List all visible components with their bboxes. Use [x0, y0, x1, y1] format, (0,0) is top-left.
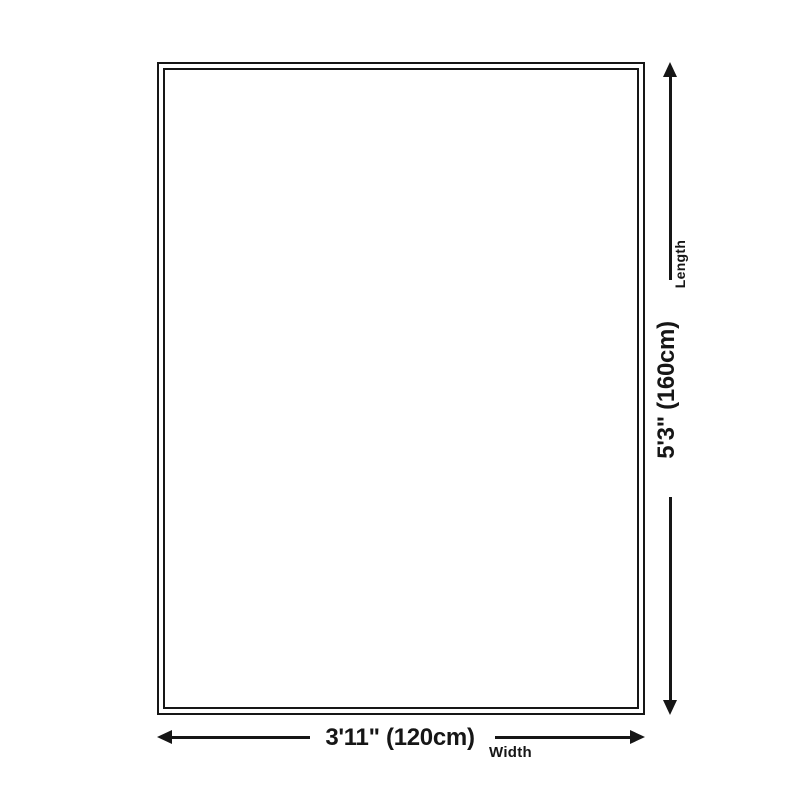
- arrow-right-icon: [630, 730, 645, 744]
- length-arrow-lower-line: [669, 497, 672, 702]
- rug-outline-inner: [163, 68, 639, 709]
- arrow-down-icon: [663, 700, 677, 715]
- rug-outline-outer: [157, 62, 645, 715]
- width-axis-label: Width: [489, 744, 532, 761]
- width-arrow-right-line: [495, 736, 632, 739]
- length-value: 5'3" (160cm): [653, 302, 681, 478]
- length-axis-label: Length: [672, 234, 688, 294]
- width-value: 3'11" (120cm): [312, 724, 488, 752]
- width-arrow-left-line: [170, 736, 310, 739]
- product-dimension-diagram: Length 5'3" (160cm) 3'11" (120cm) Width: [0, 0, 800, 800]
